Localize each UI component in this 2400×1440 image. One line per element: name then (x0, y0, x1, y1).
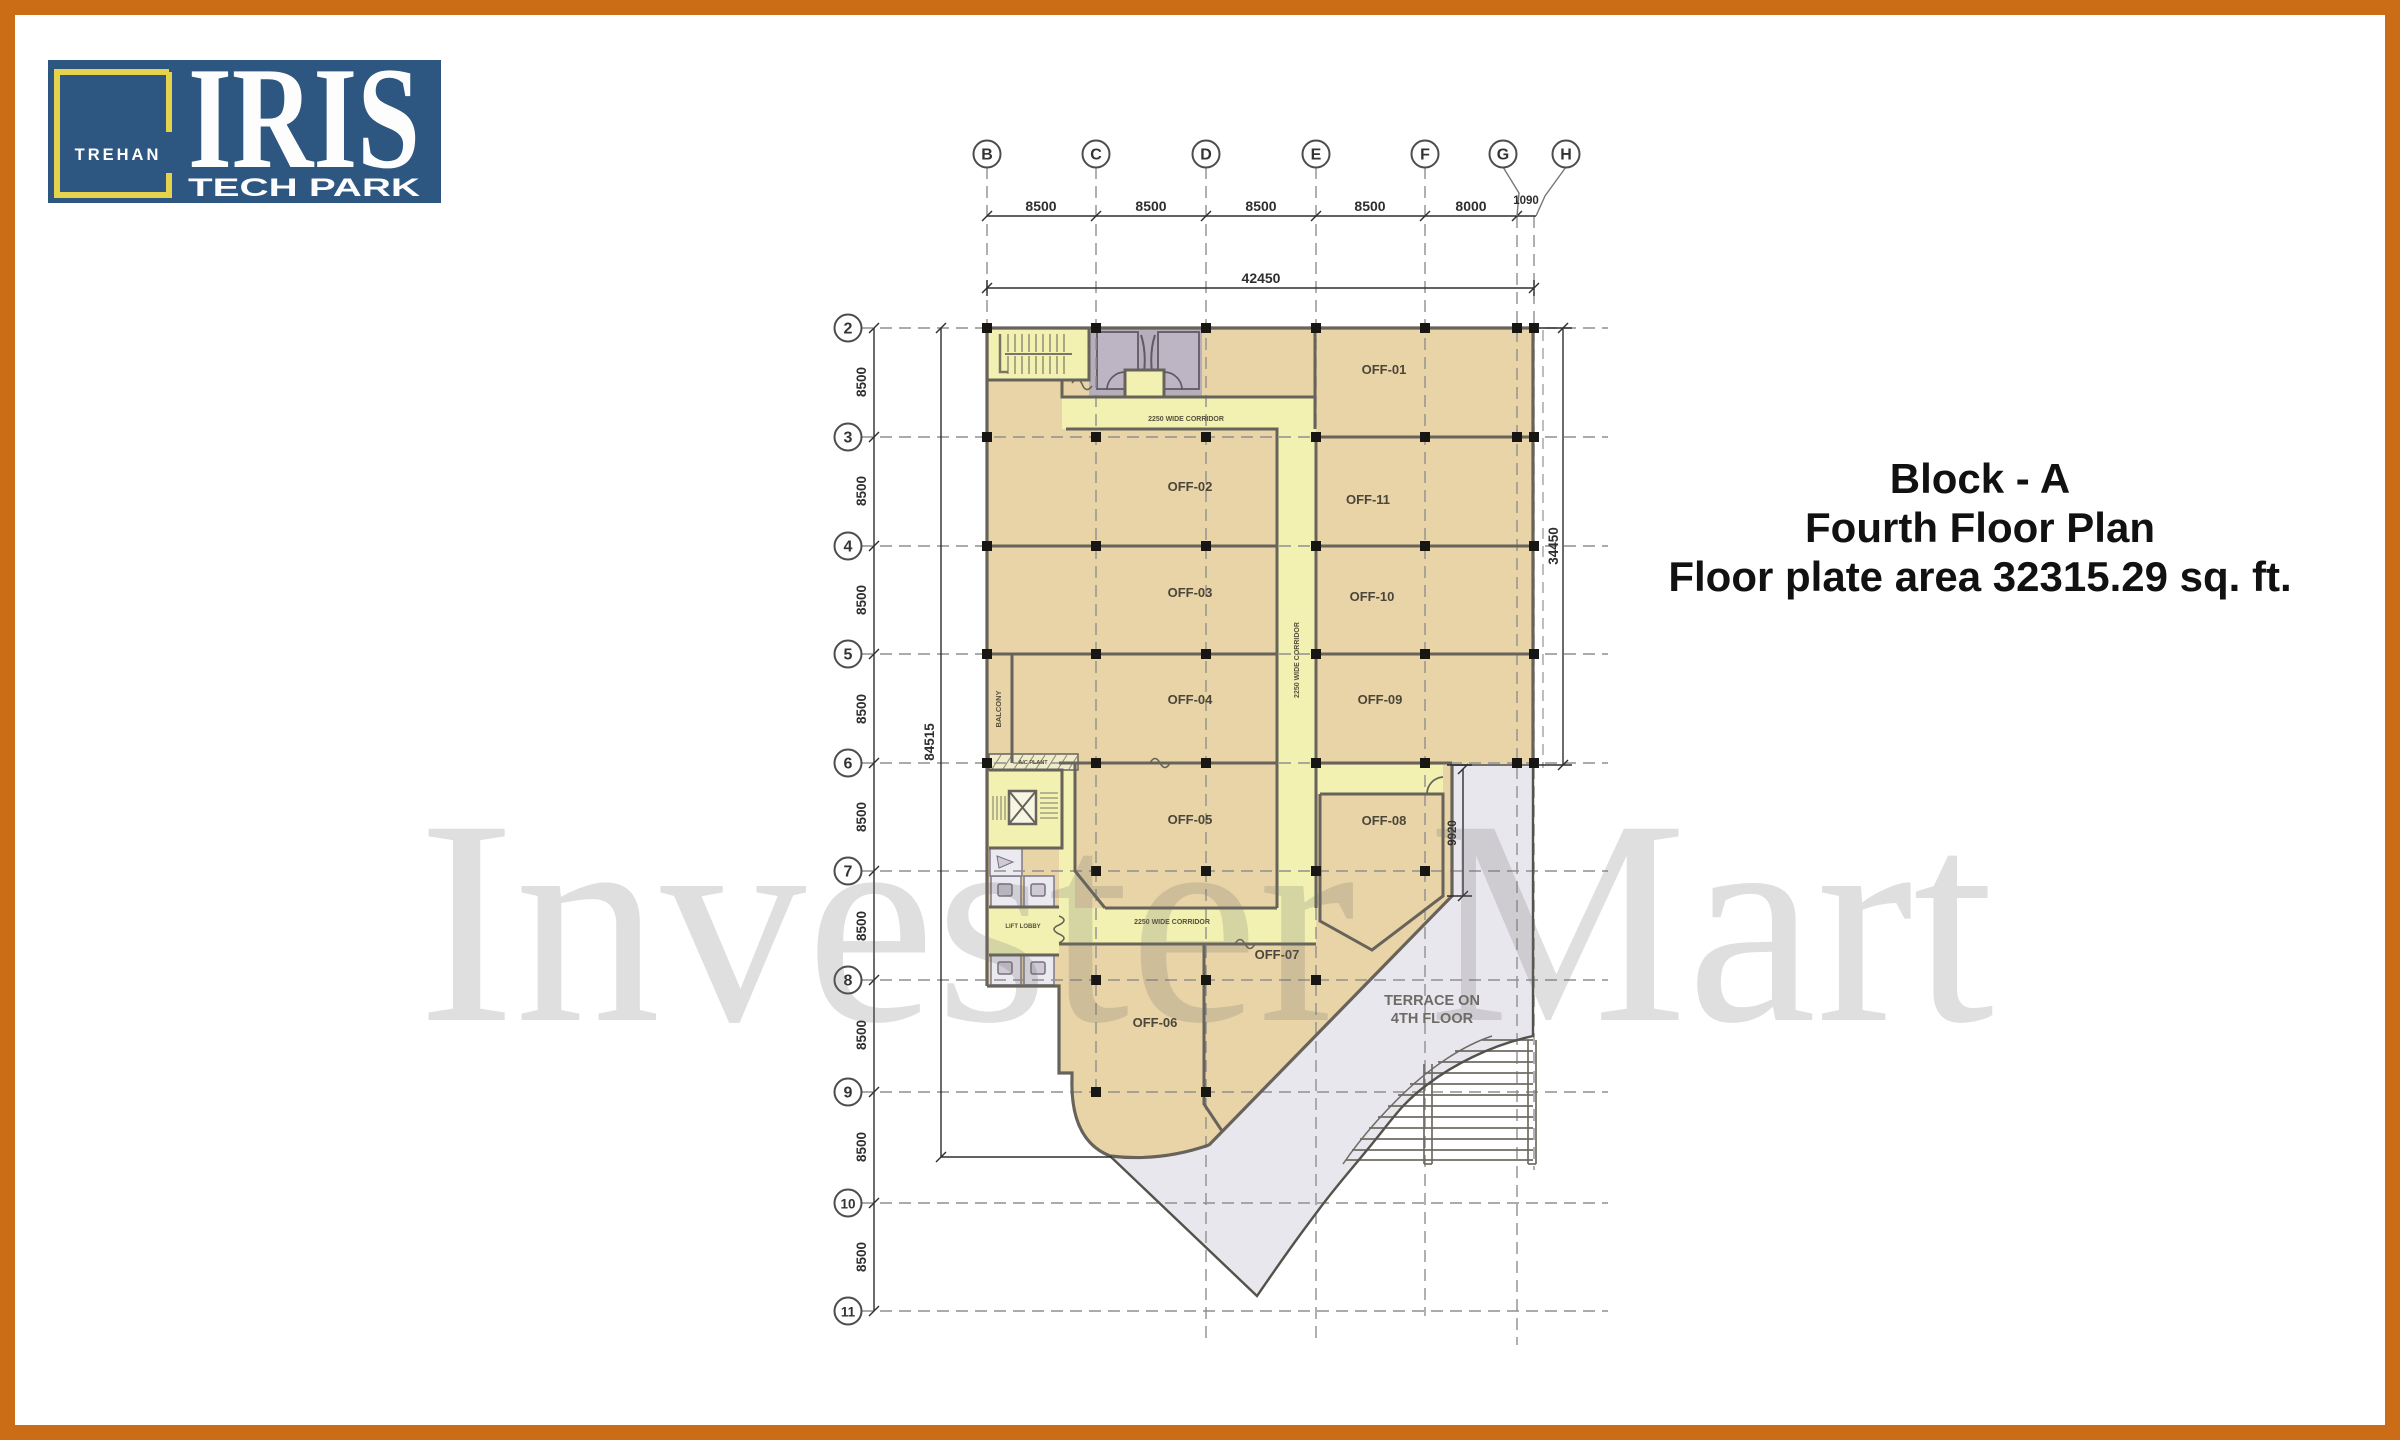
svg-text:9: 9 (844, 1085, 853, 1102)
svg-text:8500: 8500 (1025, 198, 1056, 214)
svg-text:Invester Mart: Invester Mart (418, 761, 1995, 1084)
svg-text:OFF-04: OFF-04 (1168, 692, 1214, 707)
svg-text:E: E (1311, 147, 1322, 164)
svg-text:34450: 34450 (1546, 527, 1561, 565)
svg-text:8500: 8500 (854, 585, 869, 615)
svg-text:OFF-10: OFF-10 (1350, 589, 1395, 604)
svg-text:8500: 8500 (1135, 198, 1166, 214)
svg-text:2250 WIDE CORRIDOR: 2250 WIDE CORRIDOR (1148, 416, 1224, 423)
svg-text:3: 3 (844, 430, 853, 447)
svg-text:OFF-03: OFF-03 (1168, 585, 1213, 600)
svg-text:8500: 8500 (854, 367, 869, 397)
svg-text:84515: 84515 (922, 723, 937, 761)
svg-text:5: 5 (844, 647, 853, 664)
svg-text:OFF-02: OFF-02 (1168, 479, 1213, 494)
svg-text:2250 WIDE CORRIDOR: 2250 WIDE CORRIDOR (1294, 622, 1301, 698)
svg-text:F: F (1420, 147, 1430, 164)
svg-text:D: D (1200, 147, 1212, 164)
svg-text:H: H (1560, 147, 1572, 164)
svg-text:BALCONY: BALCONY (994, 690, 1003, 727)
svg-text:8500: 8500 (854, 1132, 869, 1162)
svg-text:8500: 8500 (854, 694, 869, 724)
svg-text:2: 2 (844, 321, 853, 338)
svg-text:G: G (1497, 147, 1509, 164)
svg-text:8500: 8500 (1245, 198, 1276, 214)
svg-text:11: 11 (841, 1305, 856, 1320)
svg-text:OFF-11: OFF-11 (1346, 492, 1390, 507)
svg-text:8500: 8500 (854, 1242, 869, 1272)
svg-text:8500: 8500 (854, 476, 869, 506)
svg-text:C: C (1090, 147, 1102, 164)
svg-text:10: 10 (840, 1197, 855, 1212)
svg-text:8000: 8000 (1455, 198, 1486, 214)
svg-text:OFF-01: OFF-01 (1362, 362, 1407, 377)
svg-text:1090: 1090 (1513, 195, 1539, 207)
svg-text:8500: 8500 (1354, 198, 1385, 214)
svg-text:4: 4 (844, 539, 853, 556)
svg-text:42450: 42450 (1242, 270, 1281, 286)
svg-text:B: B (981, 147, 993, 164)
svg-text:OFF-09: OFF-09 (1358, 692, 1403, 707)
